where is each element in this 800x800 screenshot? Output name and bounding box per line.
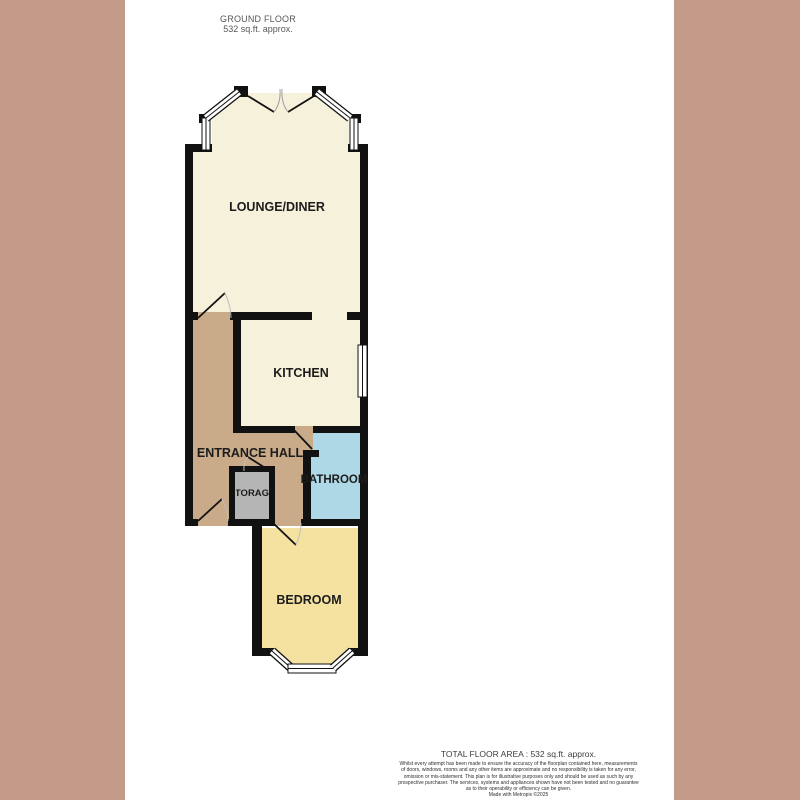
kitchen-window [358,345,367,397]
metropix-credit: Made with Metropix ©2025 [378,792,659,798]
label-entrance-hall: ENTRANCE HALL [197,446,304,460]
room-bedroom [262,528,358,652]
label-kitchen: KITCHEN [273,366,329,380]
label-bedroom: BEDROOM [276,593,341,607]
label-bathroom: BATHROOM [301,474,368,486]
threshold-hall-bathroom [295,426,313,433]
label-lounge: LOUNGE/DINER [229,200,325,214]
footer-block: TOTAL FLOOR AREA : 532 sq.ft. approx. Wh… [378,749,659,799]
bedroom-bay-window-center [288,664,336,673]
total-floor-area: TOTAL FLOOR AREA : 532 sq.ft. approx. [378,749,659,759]
disclaimer-line: of doors, windows, rooms and any other i… [378,767,659,773]
floorplan-drawing: LOUNGE/DINER KITCHEN ENTRANCE HALL BATHR… [0,0,800,800]
disclaimer-line: omission or mis-statement. This plan is … [378,774,659,780]
threshold-lounge-kitchen [312,312,347,320]
bay-window-right-vertical [350,118,358,150]
threshold-hall-bedroom [273,519,301,526]
floorplan-page: GROUND FLOOR 532 sq.ft. approx. [0,0,800,800]
room-entrance-hall [193,320,233,519]
threshold-front-door [198,519,228,526]
bay-window-left-vertical [202,118,210,150]
